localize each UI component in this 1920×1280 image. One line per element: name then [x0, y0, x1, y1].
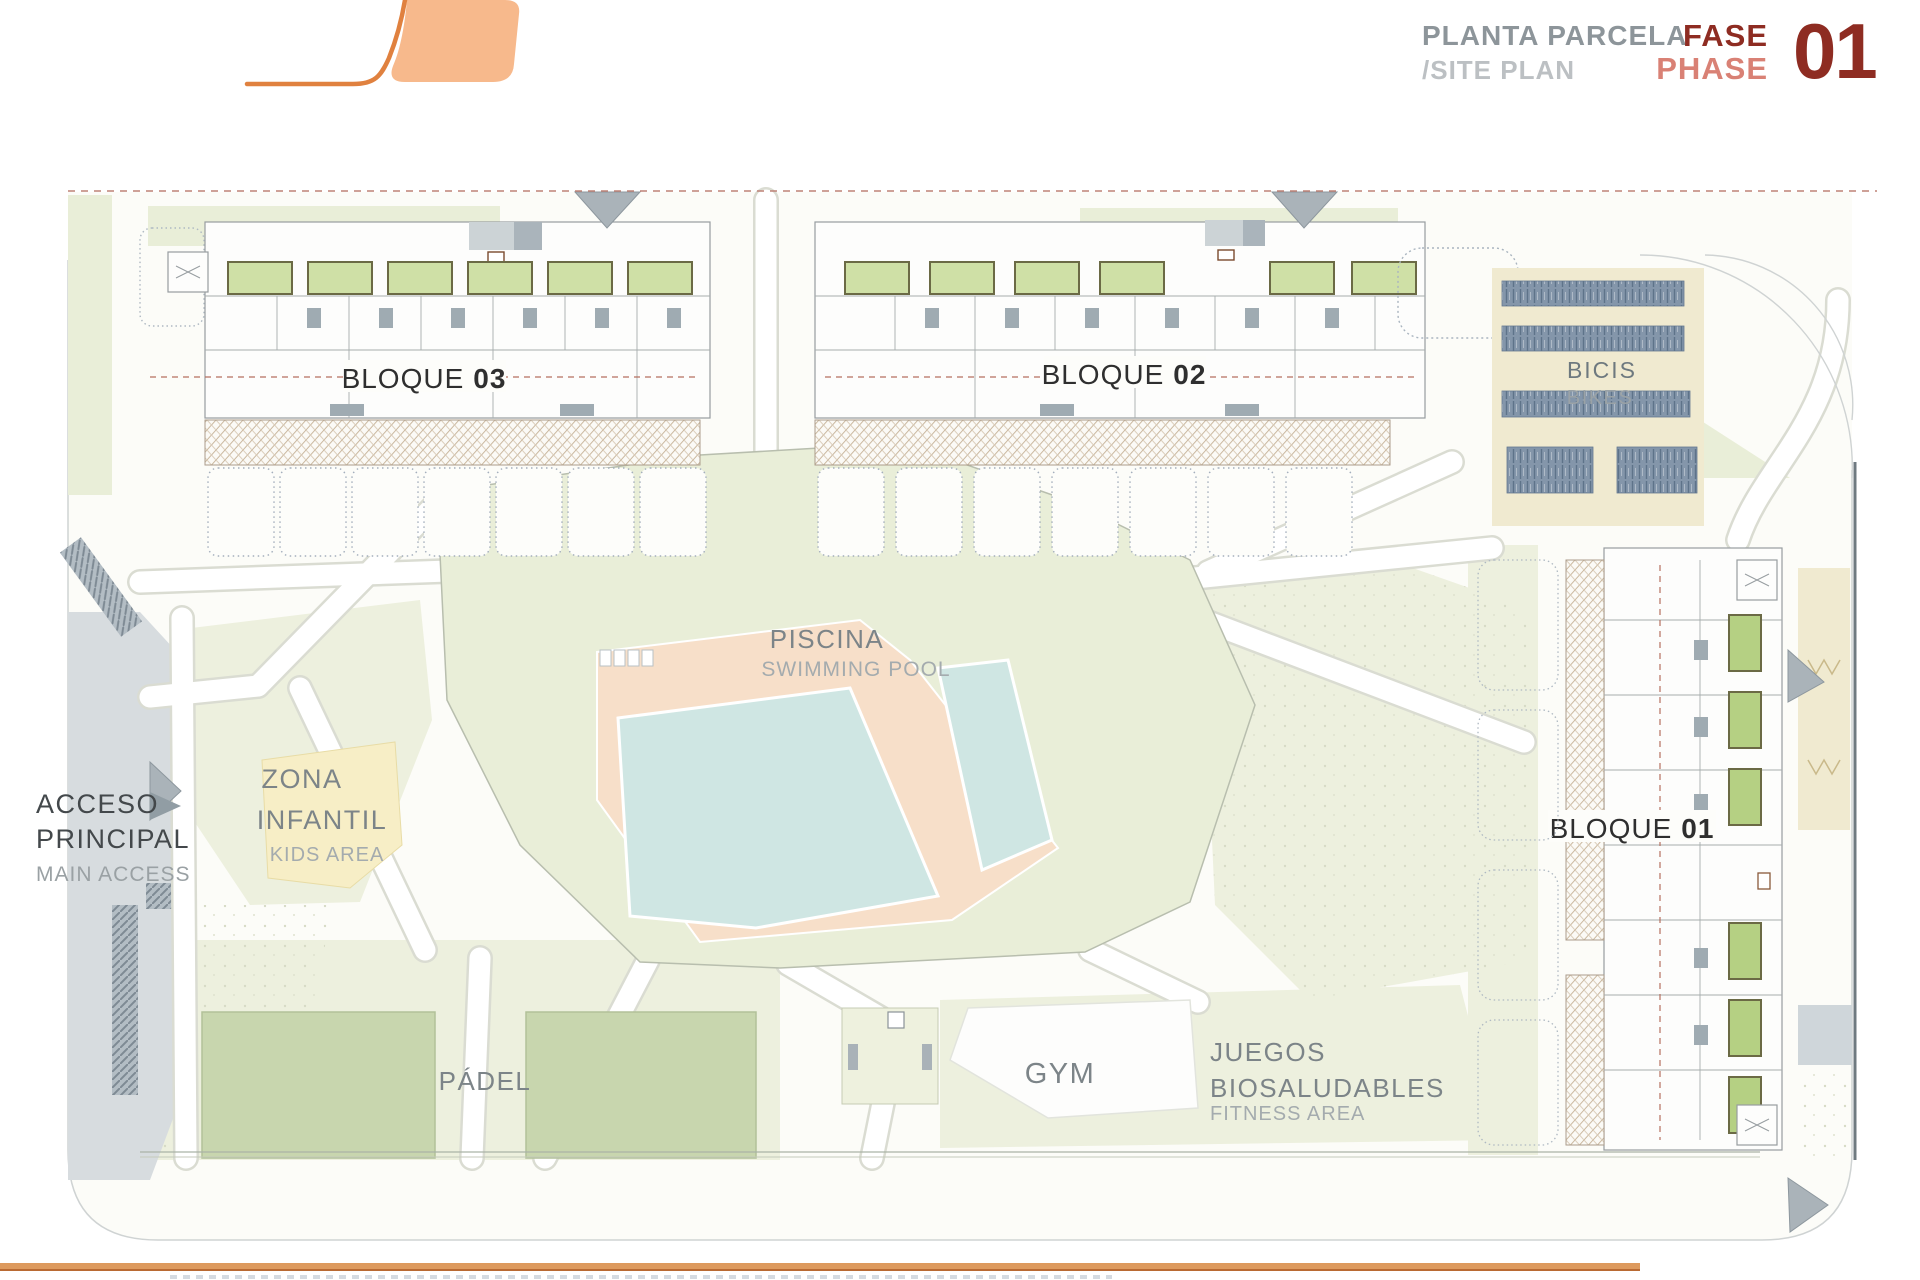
juegos-label-2: BIOSALUDABLES	[1210, 1073, 1445, 1103]
bicis-label: BICIS	[1567, 357, 1637, 383]
pergola-parking	[1566, 560, 1604, 940]
piscina-label-en: SWIMMING POOL	[761, 658, 950, 681]
pergola-parking	[815, 420, 1390, 465]
pergola-parking	[205, 420, 700, 465]
bloque-01-label: BLOQUE01	[1550, 813, 1715, 844]
kids-area-label: KIDS AREA	[270, 844, 385, 866]
bloque-02-label: BLOQUE02	[1042, 359, 1207, 390]
bloque-03-label: BLOQUE03	[342, 363, 507, 394]
piscina-label: PISCINA	[770, 624, 885, 654]
building-bloque-03: BLOQUE03	[140, 192, 710, 556]
gym-label: GYM	[1025, 1058, 1096, 1090]
fitness-area-label: FITNESS AREA	[1210, 1103, 1365, 1125]
juegos-label-1: JUEGOS	[1210, 1037, 1326, 1067]
bikes-label: BIKES	[1567, 387, 1633, 409]
page: PLANTA PARCELA /SITE PLAN FASE PHASE 01	[0, 0, 1920, 1280]
bike-parking: BICIS BIKES	[1492, 268, 1704, 526]
main-access-label: MAIN ACCESS	[36, 863, 191, 886]
pergola-parking	[1566, 975, 1604, 1145]
acceso-label-2: PRINCIPAL	[36, 824, 190, 854]
zona-infantil-label-2: INFANTIL	[257, 805, 388, 835]
padel-court-1	[202, 1012, 435, 1158]
acceso-label-1: ACCESO	[36, 789, 159, 819]
padel-court-2	[526, 1012, 756, 1158]
footer-dashes	[170, 1275, 1112, 1279]
site-plan: PISCINA SWIMMING POOL ZONA INFANTIL KIDS…	[0, 0, 1920, 1280]
footer-rule	[0, 1263, 1640, 1271]
zona-infantil-label-1: ZONA	[261, 764, 342, 794]
padel-label: PÁDEL	[439, 1066, 532, 1096]
